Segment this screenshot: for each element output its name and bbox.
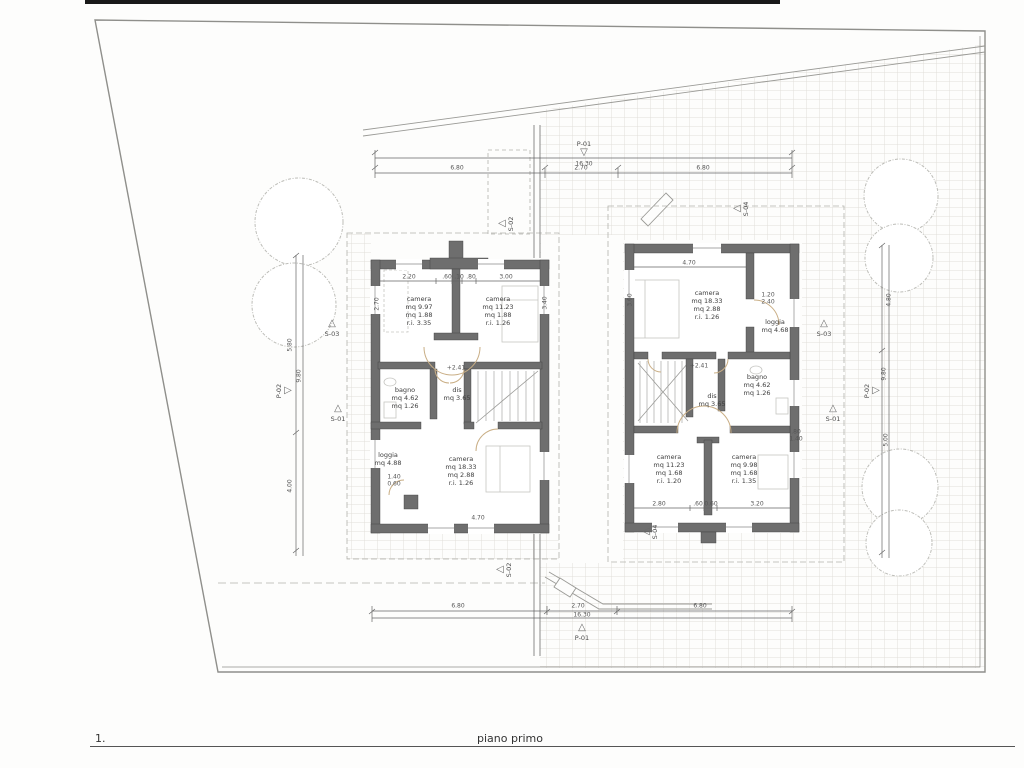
floor-plan-drawing [0, 0, 1024, 768]
plan-caption: piano primo [477, 732, 543, 745]
title-rule [90, 746, 1015, 747]
title-block: 1. piano primo [0, 726, 1024, 756]
floor-plan-page: cameramq 9.97mq 1.88r.i. 3.35cameramq 11… [0, 0, 1024, 768]
sheet-number: 1. [95, 732, 106, 745]
